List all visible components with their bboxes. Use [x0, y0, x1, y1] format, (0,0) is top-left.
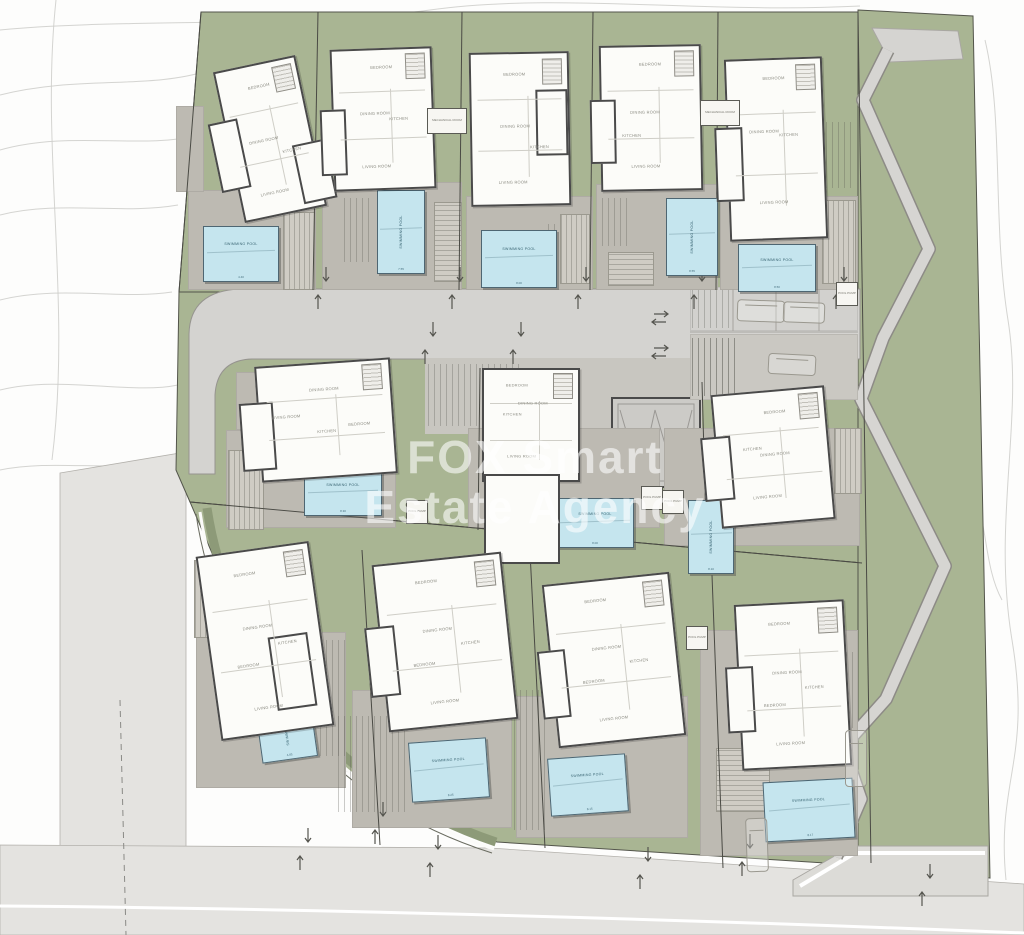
stairs: [283, 212, 315, 290]
pool-dimension: 8.10: [708, 567, 714, 571]
room-label: LIVING ROOM: [631, 164, 660, 170]
interior-wall: [390, 88, 394, 163]
room-label: LIVING ROOM: [753, 493, 782, 500]
pool-label: SWIMMING POOL: [792, 797, 825, 803]
pool-pump-box: POOL PUMP: [836, 282, 858, 306]
interior-wall: [451, 605, 461, 693]
interior-wall: [733, 112, 816, 116]
room-label: LIVING ROOM: [272, 414, 301, 421]
pool-dimension: 8.00: [516, 281, 522, 285]
driveway-hatch: [344, 198, 370, 262]
room-label: BEDROOM: [768, 621, 790, 627]
room-label: BEDROOM: [763, 408, 785, 415]
stairs: [560, 214, 590, 284]
room-label: KITCHEN: [389, 116, 408, 122]
pool-pump-label: POOL PUMP: [688, 636, 706, 639]
stairs: [834, 428, 862, 494]
watermark-line-2: Estate Agency: [320, 480, 750, 534]
car-outline: [845, 730, 867, 787]
pool-label: SWIMMING POOL: [760, 258, 793, 262]
interior-wall: [607, 89, 693, 92]
room-label: DINING ROOM: [518, 401, 548, 406]
room-label: DINING ROOM: [360, 111, 390, 117]
staircase: [271, 63, 296, 93]
room-label: DINING ROOM: [772, 669, 802, 676]
driveway-hatch: [514, 690, 546, 830]
room-label: BEDROOM: [415, 578, 437, 585]
villa-floorplan-5: BEDROOMKITCHENDINING ROOMLIVING ROOM: [724, 56, 828, 241]
driveway-hatch: [428, 364, 472, 426]
room-label: LIVING ROOM: [776, 740, 805, 747]
room-label: BEDROOM: [233, 570, 256, 578]
villa-floorplan-3: BEDROOMDINING ROOMKITCHENLIVING ROOM: [469, 51, 572, 207]
room-label: BEDROOM: [639, 61, 661, 66]
interior-wall: [339, 90, 425, 94]
interior-wall: [212, 598, 308, 612]
pool-dimension: 8.50: [774, 285, 780, 289]
room-label: BEDROOM: [503, 71, 525, 76]
room-label: DINING ROOM: [591, 644, 621, 652]
room-label: LIVING ROOM: [760, 199, 789, 205]
villa-wing: [364, 625, 401, 698]
interior-wall: [748, 705, 841, 711]
swimming-pool: SWIMMING POOL8.17: [762, 778, 855, 843]
swimming-pool: SWIMMING POOL4.40: [203, 226, 279, 282]
staircase: [542, 58, 562, 84]
mechanical-room-label: MECHANICAL ROOM: [432, 119, 462, 122]
interior-wall: [608, 137, 694, 140]
room-label: DINING ROOM: [422, 626, 452, 634]
interior-wall: [556, 622, 665, 634]
driveway-hatch: [692, 338, 740, 396]
interior-wall: [620, 624, 630, 710]
villa-wing: [537, 649, 572, 720]
watermark-line-1: FOX Smart: [320, 430, 750, 484]
pool-label: SWIMMING POOL: [690, 220, 694, 253]
swimming-pool: SWIMMING POOL8.15: [547, 753, 629, 816]
swimming-pool: SWIMMING POOL8.50: [738, 244, 816, 292]
car-outline: [737, 299, 786, 323]
room-label: KITCHEN: [461, 639, 480, 646]
room-label: KITCHEN: [779, 131, 798, 137]
interior-wall: [736, 172, 819, 176]
villa-floorplan-12: BEDROOMDINING ROOMKITCHENBEDROOMLIVING R…: [734, 599, 853, 771]
staircase: [473, 559, 496, 587]
room-label: LIVING ROOM: [362, 163, 391, 169]
room-label: DINING ROOM: [760, 450, 790, 458]
interior-wall: [800, 649, 806, 736]
staircase: [282, 549, 305, 578]
mechanical-room-label: MECHANICAL ROOM: [705, 111, 735, 114]
interior-wall: [229, 102, 298, 118]
room-label: KITCHEN: [805, 684, 824, 690]
villa-floorplan-11: BEDROOMDINING ROOMKITCHENBEDROOMLIVING R…: [542, 572, 686, 748]
interior-wall: [392, 659, 502, 672]
staircase: [817, 606, 838, 633]
room-label: DINING ROOM: [249, 135, 279, 146]
stairs: [608, 252, 654, 286]
staircase: [795, 64, 816, 91]
villa-wing: [320, 109, 348, 176]
mechanical-room-box: MECHANICAL ROOM: [700, 100, 740, 126]
room-label: KITCHEN: [530, 144, 549, 149]
mechanical-room-box: MECHANICAL ROOM: [427, 108, 467, 134]
room-label: BEDROOM: [584, 597, 606, 604]
driveway-hatch: [602, 198, 630, 246]
pool-dimension: 4.40: [238, 275, 244, 279]
room-label: LIVING ROOM: [599, 714, 628, 722]
interior-wall: [745, 650, 838, 656]
driveway-hatch: [826, 122, 852, 188]
room-label: DINING ROOM: [500, 123, 530, 129]
pool-dimension: 7.55: [398, 267, 404, 271]
swimming-pool: SWIMMING POOL7.55: [377, 190, 425, 274]
pool-dimension: 8.15: [587, 807, 593, 811]
interior-wall: [269, 105, 287, 184]
room-label: BEDROOM: [247, 81, 270, 90]
interior-wall: [782, 110, 786, 206]
interior-wall: [779, 428, 786, 498]
room-label: KITCHEN: [622, 133, 641, 138]
pool-dimension: 4.85: [286, 752, 292, 757]
staircase: [553, 373, 573, 399]
interior-wall: [386, 604, 496, 617]
room-label: LIVING ROOM: [430, 697, 459, 705]
pool-pump-label: POOL PUMP: [838, 292, 856, 295]
pool-label: SWIMMING POOL: [224, 242, 257, 246]
room-label: BEDROOM: [348, 420, 370, 427]
villa-floorplan-9: BEDROOMDINING ROOMKITCHENBEDROOMLIVING R…: [196, 541, 335, 741]
swimming-pool: SWIMMING POOL8.55: [666, 198, 718, 276]
room-label: LIVING ROOM: [499, 179, 528, 185]
car-outline: [745, 818, 769, 873]
car-outline: [767, 353, 816, 376]
pool-label: SWIMMING POOL: [571, 772, 604, 778]
interior-wall: [562, 677, 671, 689]
villa-wing: [208, 118, 252, 193]
room-label: KITCHEN: [629, 657, 648, 664]
room-label: DINING ROOM: [309, 385, 339, 392]
room-label: KITCHEN: [503, 412, 522, 417]
pool-dimension: 8.25: [448, 793, 454, 797]
room-label: LIVING ROOM: [260, 186, 289, 197]
villa-wing: [590, 100, 617, 164]
pool-label: SWIMMING POOL: [432, 756, 465, 762]
staircase: [405, 53, 426, 80]
interior-wall: [266, 394, 382, 403]
villa-wing: [239, 402, 278, 472]
interior-wall: [341, 137, 427, 141]
pool-label: SWIMMING POOL: [399, 215, 403, 248]
interior-wall: [527, 96, 529, 177]
room-label: DINING ROOM: [630, 110, 660, 116]
terrace-paving: [176, 106, 204, 192]
pool-dimension: 8.17: [807, 833, 813, 837]
staircase: [362, 363, 384, 390]
villa-floorplan-4: BEDROOMDINING ROOMKITCHENLIVING ROOM: [599, 44, 704, 192]
room-label: BEDROOM: [762, 75, 784, 81]
pool-dimension: 8.55: [689, 269, 695, 273]
stairs: [434, 202, 462, 282]
staircase: [797, 392, 819, 420]
car-outline: [783, 301, 826, 323]
room-label: BEDROOM: [370, 64, 392, 70]
interior-wall: [658, 87, 660, 164]
swimming-pool: SWIMMING POOL8.25: [408, 737, 490, 802]
villa-wing: [714, 127, 745, 202]
villa-floorplan-10: BEDROOMDINING ROOMKITCHENBEDROOMLIVING R…: [372, 552, 519, 733]
villa-floorplan-2: BEDROOMKITCHENDINING ROOMLIVING ROOM: [330, 46, 437, 191]
room-label: BEDROOM: [506, 383, 528, 388]
staircase: [674, 50, 694, 76]
pool-label: SWIMMING POOL: [502, 247, 535, 251]
swimming-pool: SWIMMING POOL8.00: [481, 230, 557, 288]
parking-hatch: [692, 290, 732, 328]
staircase: [642, 579, 665, 607]
room-label: DINING ROOM: [749, 129, 779, 135]
villa-wing: [725, 666, 756, 733]
pool-pump-box: POOL PUMP: [686, 626, 708, 650]
room-label: DINING ROOM: [242, 623, 272, 632]
site-plan: BEDROOMDINING ROOMKITCHENLIVING ROOMSWIM…: [0, 0, 1024, 935]
pool-dimension: 8.00: [592, 541, 598, 545]
